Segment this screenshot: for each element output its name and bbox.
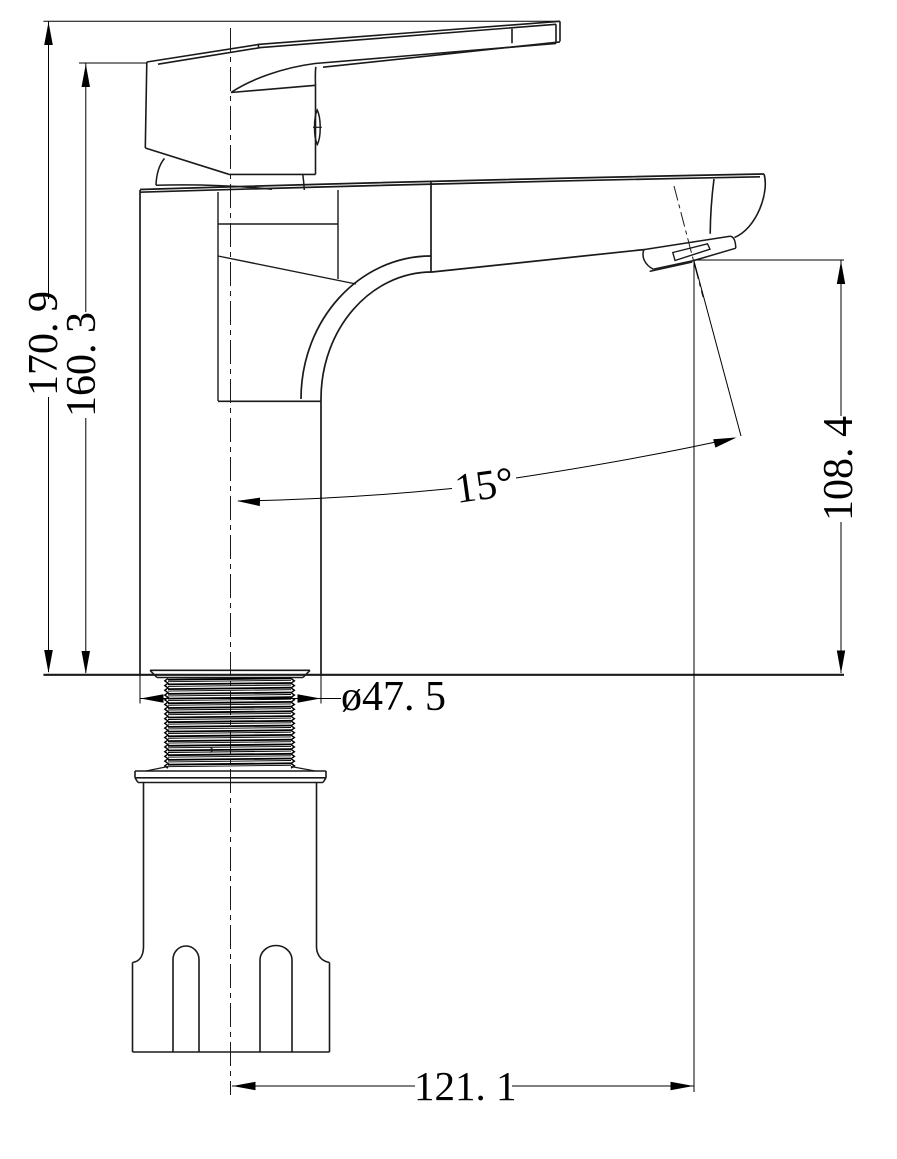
svg-text:108. 4: 108. 4 — [816, 416, 862, 521]
svg-text:15°: 15° — [452, 459, 517, 513]
svg-text:121. 1: 121. 1 — [414, 1063, 517, 1109]
svg-text:160. 3: 160. 3 — [59, 312, 105, 417]
svg-text:ø47. 5: ø47. 5 — [341, 674, 446, 720]
